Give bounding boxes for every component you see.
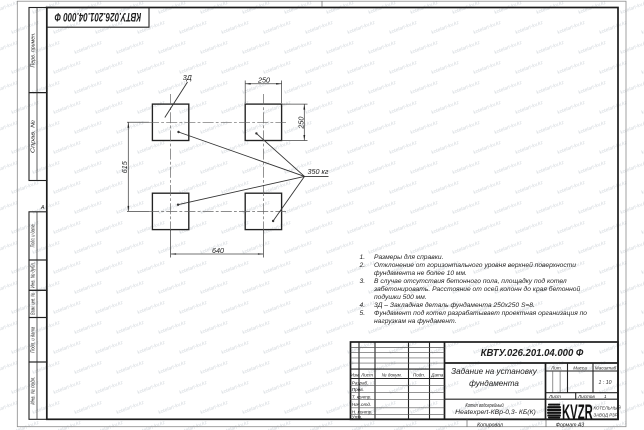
svg-text:kotelart-kv.kz: kotelart-kv.kz (599, 100, 629, 116)
svg-text:kotelart-kv.kz: kotelart-kv.kz (536, 80, 566, 96)
svg-text:kotelart-kv.kz: kotelart-kv.kz (347, 100, 377, 116)
svg-text:kotelart-kv.kz: kotelart-kv.kz (410, 160, 440, 176)
svg-text:kotelart-kv.kz: kotelart-kv.kz (494, 200, 524, 216)
svg-text:kotelart-kv.kz: kotelart-kv.kz (326, 120, 356, 136)
svg-text:kotelart-kv.kz: kotelart-kv.kz (221, 340, 251, 356)
svg-text:kotelart-kv.kz: kotelart-kv.kz (11, 180, 41, 196)
svg-text:kotelart-kv.kz: kotelart-kv.kz (326, 280, 356, 296)
svg-text:фундамента: фундамента (469, 379, 519, 388)
svg-text:kotelart-kv.kz: kotelart-kv.kz (284, 40, 314, 56)
svg-text:kotelart-kv.kz: kotelart-kv.kz (494, 40, 524, 56)
svg-text:kotelart-kv.kz: kotelart-kv.kz (515, 20, 545, 36)
svg-text:kotelart-kv.kz: kotelart-kv.kz (305, 100, 335, 116)
svg-text:kotelart-kv.kz: kotelart-kv.kz (221, 20, 251, 36)
svg-text:1: 1 (604, 394, 607, 399)
svg-text:№ докум.: № докум. (382, 372, 402, 377)
svg-text:kotelart-kv.kz: kotelart-kv.kz (620, 200, 644, 216)
svg-text:4.: 4. (360, 302, 366, 309)
svg-text:kotelart-kv.kz: kotelart-kv.kz (53, 220, 83, 236)
svg-text:kotelart-kv.kz: kotelart-kv.kz (0, 360, 19, 376)
svg-text:3Д – Закладная деталь фундамен: 3Д – Закладная деталь фундамента 250х250… (374, 301, 535, 309)
svg-text:kotelart-kv.kz: kotelart-kv.kz (179, 420, 209, 430)
svg-text:kotelart-kv.kz: kotelart-kv.kz (263, 60, 293, 76)
svg-text:kotelart-kv.kz: kotelart-kv.kz (95, 220, 125, 236)
svg-text:2.: 2. (359, 262, 366, 269)
svg-text:kotelart-kv.kz: kotelart-kv.kz (74, 160, 104, 176)
svg-text:Фундамент под котел разрабатыв: Фундамент под котел разрабатывает проект… (374, 309, 587, 317)
svg-text:kotelart-kv.kz: kotelart-kv.kz (221, 60, 251, 76)
svg-text:kotelart-kv.kz: kotelart-kv.kz (536, 240, 566, 256)
svg-text:kotelart-kv.kz: kotelart-kv.kz (599, 220, 629, 236)
svg-text:kotelart-kv.kz: kotelart-kv.kz (452, 160, 482, 176)
svg-text:Т. контр.: Т. контр. (352, 394, 372, 399)
svg-text:kotelart-kv.kz: kotelart-kv.kz (578, 240, 608, 256)
svg-text:kotelart-kv.kz: kotelart-kv.kz (200, 80, 230, 96)
svg-text:kotelart-kv.kz: kotelart-kv.kz (116, 40, 146, 56)
svg-text:kotelart-kv.kz: kotelart-kv.kz (158, 320, 188, 336)
svg-text:kotelart-kv.kz: kotelart-kv.kz (368, 200, 398, 216)
svg-text:kotelart-kv.kz: kotelart-kv.kz (0, 200, 19, 216)
svg-text:Подп. и дата: Подп. и дата (30, 327, 36, 353)
svg-text:1 : 10: 1 : 10 (599, 380, 612, 386)
svg-text:kotelart-kv.kz: kotelart-kv.kz (242, 400, 272, 416)
svg-text:kotelart-kv.kz: kotelart-kv.kz (74, 80, 104, 96)
svg-text:kotelart-kv.kz: kotelart-kv.kz (347, 20, 377, 36)
svg-text:kotelart-kv.kz: kotelart-kv.kz (620, 120, 644, 136)
svg-text:Справ. №: Справ. № (30, 120, 36, 153)
svg-text:kotelart-kv.kz: kotelart-kv.kz (473, 180, 503, 196)
svg-text:kotelart-kv.kz: kotelart-kv.kz (263, 220, 293, 236)
svg-text:kotelart-kv.kz: kotelart-kv.kz (473, 220, 503, 236)
svg-text:kotelart-kv.kz: kotelart-kv.kz (536, 160, 566, 176)
svg-text:kotelart-kv.kz: kotelart-kv.kz (578, 320, 608, 336)
svg-text:kotelart-kv.kz: kotelart-kv.kz (284, 320, 314, 336)
svg-text:kotelart-kv.kz: kotelart-kv.kz (347, 60, 377, 76)
svg-text:kotelart-kv.kz: kotelart-kv.kz (221, 300, 251, 316)
svg-text:kotelart-kv.kz: kotelart-kv.kz (95, 420, 125, 430)
svg-text:kotelart-kv.kz: kotelart-kv.kz (641, 20, 644, 36)
svg-text:kotelart-kv.kz: kotelart-kv.kz (536, 320, 566, 336)
svg-text:Формат А3: Формат А3 (556, 422, 584, 428)
svg-text:kotelart-kv.kz: kotelart-kv.kz (599, 300, 629, 316)
svg-text:kotelart-kv.kz: kotelart-kv.kz (389, 380, 419, 396)
svg-text:Лист: Лист (548, 394, 561, 399)
svg-text:250: 250 (257, 75, 270, 84)
svg-text:kotelart-kv.kz: kotelart-kv.kz (452, 240, 482, 256)
svg-text:kotelart-kv.kz: kotelart-kv.kz (326, 200, 356, 216)
svg-text:kotelart-kv.kz: kotelart-kv.kz (431, 20, 461, 36)
svg-text:В случае отсутствия бетонного: В случае отсутствия бетонного пола, площ… (374, 277, 567, 285)
svg-text:kotelart-kv.kz: kotelart-kv.kz (0, 320, 19, 336)
svg-text:kotelart-kv.kz: kotelart-kv.kz (557, 180, 587, 196)
svg-text:kotelart-kv.kz: kotelart-kv.kz (599, 420, 629, 430)
svg-text:kotelart-kv.kz: kotelart-kv.kz (389, 220, 419, 236)
svg-text:kotelart-kv.kz: kotelart-kv.kz (431, 420, 461, 430)
svg-text:kotelart-kv.kz: kotelart-kv.kz (515, 380, 545, 396)
svg-text:Нач.отд.: Нач.отд. (352, 402, 371, 407)
svg-text:kotelart-kv.kz: kotelart-kv.kz (368, 120, 398, 136)
svg-text:Лит.: Лит. (550, 365, 562, 370)
svg-text:kotelart-kv.kz: kotelart-kv.kz (620, 240, 644, 256)
svg-text:kotelart-kv.kz: kotelart-kv.kz (74, 400, 104, 416)
svg-text:kotelart-kv.kz: kotelart-kv.kz (263, 20, 293, 36)
svg-text:kotelart-kv.kz: kotelart-kv.kz (242, 280, 272, 296)
svg-text:kotelart-kv.kz: kotelart-kv.kz (263, 100, 293, 116)
svg-text:kotelart-kv.kz: kotelart-kv.kz (179, 300, 209, 316)
svg-text:kotelart-kv.kz: kotelart-kv.kz (641, 100, 644, 116)
svg-text:kotelart-kv.kz: kotelart-kv.kz (620, 400, 644, 416)
svg-text:Масштаб: Масштаб (595, 365, 617, 370)
svg-text:kotelart-kv.kz: kotelart-kv.kz (578, 280, 608, 296)
svg-text:kotelart-kv.kz: kotelart-kv.kz (641, 60, 644, 76)
svg-text:kotelart-kv.kz: kotelart-kv.kz (53, 140, 83, 156)
svg-text:kotelart-kv.kz: kotelart-kv.kz (431, 100, 461, 116)
svg-text:ЗАВОД РЗР: ЗАВОД РЗР (594, 412, 618, 417)
svg-text:5.: 5. (360, 310, 366, 317)
svg-text:kotelart-kv.kz: kotelart-kv.kz (515, 100, 545, 116)
svg-text:kotelart-kv.kz: kotelart-kv.kz (284, 80, 314, 96)
svg-text:kotelart-kv.kz: kotelart-kv.kz (389, 140, 419, 156)
svg-text:kotelart-kv.kz: kotelart-kv.kz (620, 0, 644, 16)
svg-text:kotelart-kv.kz: kotelart-kv.kz (116, 80, 146, 96)
svg-text:kotelart-kv.kz: kotelart-kv.kz (11, 100, 41, 116)
svg-text:kotelart-kv.kz: kotelart-kv.kz (263, 340, 293, 356)
svg-text:kotelart-kv.kz: kotelart-kv.kz (53, 420, 83, 430)
svg-text:Размеры для справки.: Размеры для справки. (374, 253, 444, 261)
svg-text:kotelart-kv.kz: kotelart-kv.kz (200, 160, 230, 176)
svg-text:Масса: Масса (573, 365, 587, 370)
svg-text:kotelart-kv.kz: kotelart-kv.kz (620, 280, 644, 296)
svg-text:kotelart-kv.kz: kotelart-kv.kz (179, 380, 209, 396)
svg-text:kotelart-kv.kz: kotelart-kv.kz (116, 360, 146, 376)
svg-text:Подп.: Подп. (413, 372, 425, 377)
svg-text:kotelart-kv.kz: kotelart-kv.kz (221, 420, 251, 430)
svg-text:kotelart-kv.kz: kotelart-kv.kz (221, 260, 251, 276)
svg-text:kotelart-kv.kz: kotelart-kv.kz (74, 320, 104, 336)
svg-text:kotelart-kv.kz: kotelart-kv.kz (452, 80, 482, 96)
svg-text:kotelart-kv.kz: kotelart-kv.kz (158, 360, 188, 376)
svg-text:kotelart-kv.kz: kotelart-kv.kz (137, 220, 167, 236)
svg-text:1.: 1. (360, 254, 366, 261)
svg-text:kotelart-kv.kz: kotelart-kv.kz (326, 320, 356, 336)
svg-text:kotelart-kv.kz: kotelart-kv.kz (599, 260, 629, 276)
svg-text:kotelart-kv.kz: kotelart-kv.kz (284, 200, 314, 216)
svg-text:kotelart-kv.kz: kotelart-kv.kz (557, 20, 587, 36)
svg-text:kotelart-kv.kz: kotelart-kv.kz (242, 360, 272, 376)
svg-text:kotelart-kv.kz: kotelart-kv.kz (578, 80, 608, 96)
svg-text:3Д: 3Д (183, 73, 192, 82)
svg-text:kotelart-kv.kz: kotelart-kv.kz (0, 120, 19, 136)
svg-text:kotelart-kv.kz: kotelart-kv.kz (326, 240, 356, 256)
svg-text:kotelart-kv.kz: kotelart-kv.kz (389, 180, 419, 196)
svg-text:kotelart-kv.kz: kotelart-kv.kz (137, 420, 167, 430)
svg-text:kotelart-kv.kz: kotelart-kv.kz (305, 420, 335, 430)
svg-text:kotelart-kv.kz: kotelart-kv.kz (53, 100, 83, 116)
svg-text:kotelart-kv.kz: kotelart-kv.kz (137, 340, 167, 356)
svg-text:kotelart-kv.kz: kotelart-kv.kz (0, 80, 19, 96)
svg-text:КВТУ.026.201.04.000 Ф: КВТУ.026.201.04.000 Ф (55, 9, 142, 22)
svg-text:kotelart-kv.kz: kotelart-kv.kz (599, 20, 629, 36)
svg-text:kotelart-kv.kz: kotelart-kv.kz (557, 100, 587, 116)
svg-text:kotelart-kv.kz: kotelart-kv.kz (473, 100, 503, 116)
svg-text:kotelart-kv.kz: kotelart-kv.kz (221, 140, 251, 156)
svg-text:kotelart-kv.kz: kotelart-kv.kz (284, 360, 314, 376)
svg-text:kotelart-kv.kz: kotelart-kv.kz (158, 280, 188, 296)
svg-text:kotelart-kv.kz: kotelart-kv.kz (473, 20, 503, 36)
svg-text:kotelart-kv.kz: kotelart-kv.kz (116, 280, 146, 296)
svg-text:kotelart-kv.kz: kotelart-kv.kz (263, 300, 293, 316)
svg-text:kotelart-kv.kz: kotelart-kv.kz (515, 220, 545, 236)
svg-text:kotelart-kv.kz: kotelart-kv.kz (515, 180, 545, 196)
svg-text:kotelart-kv.kz: kotelart-kv.kz (179, 340, 209, 356)
svg-text:KVZR: KVZR (562, 400, 593, 424)
svg-text:kotelart-kv.kz: kotelart-kv.kz (116, 240, 146, 256)
svg-text:kotelart-kv.kz: kotelart-kv.kz (242, 320, 272, 336)
svg-text:забетонировать. Расстояние от: забетонировать. Расстояние от осей колон… (373, 285, 581, 293)
svg-text:подушки 500 мм.: подушки 500 мм. (374, 293, 427, 301)
svg-text:kotelart-kv.kz: kotelart-kv.kz (53, 260, 83, 276)
svg-text:kotelart-kv.kz: kotelart-kv.kz (557, 220, 587, 236)
svg-text:kotelart-kv.kz: kotelart-kv.kz (431, 220, 461, 236)
svg-text:kotelart-kv.kz: kotelart-kv.kz (305, 180, 335, 196)
svg-text:kotelart-kv.kz: kotelart-kv.kz (179, 100, 209, 116)
svg-text:kotelart-kv.kz: kotelart-kv.kz (494, 120, 524, 136)
svg-text:kotelart-kv.kz: kotelart-kv.kz (452, 200, 482, 216)
svg-text:kotelart-kv.kz: kotelart-kv.kz (347, 220, 377, 236)
svg-text:kotelart-kv.kz: kotelart-kv.kz (74, 40, 104, 56)
svg-text:kotelart-kv.kz: kotelart-kv.kz (137, 380, 167, 396)
svg-text:kotelart-kv.kz: kotelart-kv.kz (263, 420, 293, 430)
svg-text:Копировал: Копировал (477, 422, 503, 428)
svg-text:kotelart-kv.kz: kotelart-kv.kz (494, 80, 524, 96)
svg-text:kotelart-kv.kz: kotelart-kv.kz (158, 40, 188, 56)
svg-text:kotelart-kv.kz: kotelart-kv.kz (452, 120, 482, 136)
svg-text:250: 250 (296, 117, 305, 130)
svg-text:kotelart-kv.kz: kotelart-kv.kz (305, 340, 335, 356)
svg-text:kotelart-kv.kz: kotelart-kv.kz (95, 340, 125, 356)
svg-text:kotelart-kv.kz: kotelart-kv.kz (137, 140, 167, 156)
svg-text:kotelart-kv.kz: kotelart-kv.kz (284, 240, 314, 256)
svg-text:kotelart-kv.kz: kotelart-kv.kz (641, 180, 644, 196)
svg-text:kotelart-kv.kz: kotelart-kv.kz (305, 140, 335, 156)
svg-text:kotelart-kv.kz: kotelart-kv.kz (452, 40, 482, 56)
svg-text:kotelart-kv.kz: kotelart-kv.kz (641, 140, 644, 156)
svg-text:kotelart-kv.kz: kotelart-kv.kz (620, 360, 644, 376)
svg-text:Лист: Лист (360, 372, 373, 377)
svg-text:kotelart-kv.kz: kotelart-kv.kz (431, 380, 461, 396)
svg-text:kotelart-kv.kz: kotelart-kv.kz (242, 240, 272, 256)
svg-text:kotelart-kv.kz: kotelart-kv.kz (242, 200, 272, 216)
svg-text:kotelart-kv.kz: kotelart-kv.kz (74, 240, 104, 256)
svg-text:kotelart-kv.kz: kotelart-kv.kz (410, 80, 440, 96)
svg-text:3.: 3. (360, 278, 366, 285)
svg-text:kotelart-kv.kz: kotelart-kv.kz (53, 380, 83, 396)
svg-text:kotelart-kv.kz: kotelart-kv.kz (494, 320, 524, 336)
svg-text:kotelart-kv.kz: kotelart-kv.kz (200, 320, 230, 336)
svg-text:kotelart-kv.kz: kotelart-kv.kz (74, 120, 104, 136)
svg-text:kotelart-kv.kz: kotelart-kv.kz (305, 380, 335, 396)
svg-text:А: А (40, 205, 45, 211)
svg-text:kotelart-kv.kz: kotelart-kv.kz (578, 40, 608, 56)
svg-text:kotelart-kv.kz: kotelart-kv.kz (620, 160, 644, 176)
svg-text:kotelart-kv.kz: kotelart-kv.kz (263, 260, 293, 276)
svg-text:kotelart-kv.kz: kotelart-kv.kz (473, 60, 503, 76)
svg-text:Разраб.: Разраб. (352, 381, 369, 386)
svg-text:kotelart-kv.kz: kotelart-kv.kz (578, 200, 608, 216)
svg-text:kotelart-kv.kz: kotelart-kv.kz (95, 380, 125, 396)
svg-text:kotelart-kv.kz: kotelart-kv.kz (641, 380, 644, 396)
svg-text:kotelart-kv.kz: kotelart-kv.kz (305, 220, 335, 236)
svg-text:Отклонение от горизонтального: Отклонение от горизонтального уровня вер… (374, 261, 576, 269)
svg-text:kotelart-kv.kz: kotelart-kv.kz (11, 420, 41, 430)
svg-text:нагрузкам на фундамент.: нагрузкам на фундамент. (374, 317, 457, 325)
svg-text:kotelart-kv.kz: kotelart-kv.kz (95, 100, 125, 116)
svg-text:Утв.: Утв. (352, 415, 362, 420)
svg-text:kotelart-kv.kz: kotelart-kv.kz (305, 300, 335, 316)
svg-text:kotelart-kv.kz: kotelart-kv.kz (410, 200, 440, 216)
svg-text:kotelart-kv.kz: kotelart-kv.kz (326, 160, 356, 176)
svg-text:kotelart-kv.kz: kotelart-kv.kz (53, 300, 83, 316)
svg-text:kotelart-kv.kz: kotelart-kv.kz (179, 140, 209, 156)
svg-text:kotelart-kv.kz: kotelart-kv.kz (137, 300, 167, 316)
svg-text:kotelart-kv.kz: kotelart-kv.kz (116, 320, 146, 336)
svg-text:kotelart-kv.kz: kotelart-kv.kz (74, 360, 104, 376)
svg-text:kotelart-kv.kz: kotelart-kv.kz (305, 260, 335, 276)
svg-text:kotelart-kv.kz: kotelart-kv.kz (578, 160, 608, 176)
svg-text:kotelart-kv.kz: kotelart-kv.kz (242, 160, 272, 176)
svg-text:kotelart-kv.kz: kotelart-kv.kz (368, 160, 398, 176)
svg-text:kotelart-kv.kz: kotelart-kv.kz (200, 280, 230, 296)
svg-text:kotelart-kv.kz: kotelart-kv.kz (326, 80, 356, 96)
svg-text:kotelart-kv.kz: kotelart-kv.kz (431, 140, 461, 156)
svg-text:kotelart-kv.kz: kotelart-kv.kz (515, 140, 545, 156)
svg-text:Взам. инв. №: Взам. инв. № (30, 293, 36, 315)
svg-text:kotelart-kv.kz: kotelart-kv.kz (641, 340, 644, 356)
svg-text:kotelart-kv.kz: kotelart-kv.kz (158, 400, 188, 416)
svg-text:Heatexpert-КВр-0,3- КБ(К): Heatexpert-КВр-0,3- КБ(К) (455, 409, 536, 416)
svg-text:kotelart-kv.kz: kotelart-kv.kz (284, 280, 314, 296)
svg-text:kotelart-kv.kz: kotelart-kv.kz (599, 60, 629, 76)
svg-text:kotelart-kv.kz: kotelart-kv.kz (515, 60, 545, 76)
svg-text:kotelart-kv.kz: kotelart-kv.kz (53, 340, 83, 356)
svg-text:kotelart-kv.kz: kotelart-kv.kz (0, 280, 19, 296)
svg-text:kotelart-kv.kz: kotelart-kv.kz (137, 60, 167, 76)
svg-text:kotelart-kv.kz: kotelart-kv.kz (431, 60, 461, 76)
svg-text:kotelart-kv.kz: kotelart-kv.kz (389, 420, 419, 430)
svg-text:kotelart-kv.kz: kotelart-kv.kz (200, 200, 230, 216)
svg-text:kotelart-kv.kz: kotelart-kv.kz (389, 20, 419, 36)
svg-text:Перв. примен.: Перв. примен. (30, 33, 36, 68)
svg-text:kotelart-kv.kz: kotelart-kv.kz (221, 380, 251, 396)
svg-text:kotelart-kv.kz: kotelart-kv.kz (368, 40, 398, 56)
svg-text:kotelart-kv.kz: kotelart-kv.kz (116, 400, 146, 416)
svg-text:фундамента не более 10 мм.: фундамента не более 10 мм. (374, 269, 467, 277)
svg-text:kotelart-kv.kz: kotelart-kv.kz (494, 160, 524, 176)
svg-text:kotelart-kv.kz: kotelart-kv.kz (53, 60, 83, 76)
svg-text:kotelart-kv.kz: kotelart-kv.kz (536, 200, 566, 216)
svg-text:kotelart-kv.kz: kotelart-kv.kz (200, 360, 230, 376)
svg-text:350 кг: 350 кг (308, 167, 329, 176)
svg-text:kotelart-kv.kz: kotelart-kv.kz (95, 180, 125, 196)
svg-text:kotelart-kv.kz: kotelart-kv.kz (95, 300, 125, 316)
svg-text:kotelart-kv.kz: kotelart-kv.kz (116, 200, 146, 216)
svg-text:kotelart-kv.kz: kotelart-kv.kz (179, 220, 209, 236)
svg-text:kotelart-kv.kz: kotelart-kv.kz (179, 260, 209, 276)
svg-text:kotelart-kv.kz: kotelart-kv.kz (641, 260, 644, 276)
svg-text:kotelart-kv.kz: kotelart-kv.kz (0, 0, 19, 16)
svg-text:Инв. № дубл.: Инв. № дубл. (30, 262, 36, 288)
svg-text:kotelart-kv.kz: kotelart-kv.kz (557, 60, 587, 76)
svg-text:Пров.: Пров. (352, 387, 364, 392)
svg-text:kotelart-kv.kz: kotelart-kv.kz (473, 140, 503, 156)
svg-text:kotelart-kv.kz: kotelart-kv.kz (305, 20, 335, 36)
svg-text:kotelart-kv.kz: kotelart-kv.kz (389, 100, 419, 116)
svg-text:kotelart-kv.kz: kotelart-kv.kz (200, 400, 230, 416)
svg-text:kotelart-kv.kz: kotelart-kv.kz (620, 40, 644, 56)
svg-text:Листов: Листов (577, 394, 595, 399)
svg-text:kotelart-kv.kz: kotelart-kv.kz (305, 60, 335, 76)
svg-text:kotelart-kv.kz: kotelart-kv.kz (95, 60, 125, 76)
svg-text:kotelart-kv.kz: kotelart-kv.kz (284, 400, 314, 416)
svg-text:kotelart-kv.kz: kotelart-kv.kz (200, 40, 230, 56)
svg-text:Подп. и дата: Подп. и дата (30, 224, 36, 247)
svg-text:kotelart-kv.kz: kotelart-kv.kz (53, 180, 83, 196)
svg-text:kotelart-kv.kz: kotelart-kv.kz (620, 320, 644, 336)
svg-text:Изм: Изм (351, 372, 360, 377)
svg-text:kotelart-kv.kz: kotelart-kv.kz (179, 20, 209, 36)
svg-text:kotelart-kv.kz: kotelart-kv.kz (641, 420, 644, 430)
svg-text:kotelart-kv.kz: kotelart-kv.kz (515, 420, 545, 430)
svg-text:kotelart-kv.kz: kotelart-kv.kz (347, 420, 377, 430)
svg-text:kotelart-kv.kz: kotelart-kv.kz (641, 300, 644, 316)
svg-text:kotelart-kv.kz: kotelart-kv.kz (0, 400, 19, 416)
svg-text:kotelart-kv.kz: kotelart-kv.kz (263, 380, 293, 396)
svg-text:kotelart-kv.kz: kotelart-kv.kz (347, 140, 377, 156)
svg-text:kotelart-kv.kz: kotelart-kv.kz (410, 120, 440, 136)
svg-text:kotelart-kv.kz: kotelart-kv.kz (326, 40, 356, 56)
svg-text:kotelart-kv.kz: kotelart-kv.kz (368, 80, 398, 96)
svg-text:kotelart-kv.kz: kotelart-kv.kz (95, 140, 125, 156)
svg-text:kotelart-kv.kz: kotelart-kv.kz (536, 120, 566, 136)
svg-text:kotelart-kv.kz: kotelart-kv.kz (347, 180, 377, 196)
svg-text:kotelart-kv.kz: kotelart-kv.kz (0, 160, 19, 176)
svg-text:kotelart-kv.kz: kotelart-kv.kz (620, 80, 644, 96)
svg-text:kotelart-kv.kz: kotelart-kv.kz (0, 240, 19, 256)
svg-text:kotelart-kv.kz: kotelart-kv.kz (242, 40, 272, 56)
svg-text:kotelart-kv.kz: kotelart-kv.kz (494, 240, 524, 256)
svg-text:kotelart-kv.kz: kotelart-kv.kz (0, 40, 19, 56)
svg-text:Инв. № подл.: Инв. № подл. (30, 377, 36, 405)
svg-text:Дата: Дата (430, 372, 444, 377)
svg-text:kotelart-kv.kz: kotelart-kv.kz (641, 220, 644, 236)
svg-text:kotelart-kv.kz: kotelart-kv.kz (137, 260, 167, 276)
svg-text:kotelart-kv.kz: kotelart-kv.kz (557, 140, 587, 156)
svg-text:kotelart-kv.kz: kotelart-kv.kz (431, 180, 461, 196)
svg-text:kotelart-kv.kz: kotelart-kv.kz (74, 200, 104, 216)
svg-text:Задание на установку: Задание на установку (451, 367, 538, 376)
svg-text:kotelart-kv.kz: kotelart-kv.kz (389, 60, 419, 76)
svg-text:kotelart-kv.kz: kotelart-kv.kz (599, 140, 629, 156)
svg-text:КВТУ.026.201.04.000 Ф: КВТУ.026.201.04.000 Ф (481, 347, 584, 359)
svg-text:kotelart-kv.kz: kotelart-kv.kz (410, 40, 440, 56)
svg-text:kotelart-kv.kz: kotelart-kv.kz (599, 180, 629, 196)
svg-text:640: 640 (212, 246, 224, 255)
svg-text:kotelart-kv.kz: kotelart-kv.kz (578, 120, 608, 136)
svg-text:kotelart-kv.kz: kotelart-kv.kz (137, 100, 167, 116)
svg-text:Н. контр.: Н. контр. (352, 409, 373, 414)
svg-text:kotelart-kv.kz: kotelart-kv.kz (95, 260, 125, 276)
svg-text:kotelart-kv.kz: kotelart-kv.kz (158, 200, 188, 216)
